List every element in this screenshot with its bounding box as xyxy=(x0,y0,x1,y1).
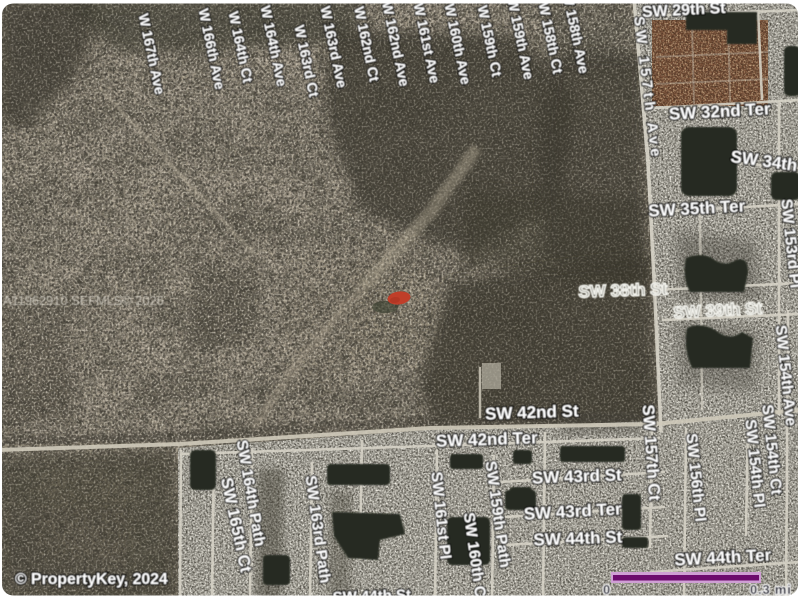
svg-text:SW 44th St: SW 44th St xyxy=(533,527,623,549)
svg-text:SW 38th St: SW 38th St xyxy=(578,279,668,301)
svg-text:SW 42nd St: SW 42nd St xyxy=(485,401,579,423)
svg-text:SW 42nd Ter: SW 42nd Ter xyxy=(436,428,539,451)
svg-text:© PropertyKey, 2024: © PropertyKey, 2024 xyxy=(15,571,168,588)
svg-text:0: 0 xyxy=(603,582,611,597)
svg-text:A11962910 SEFMLS© 2026: A11962910 SEFMLS© 2026 xyxy=(3,293,164,308)
svg-text:0.3 mi: 0.3 mi xyxy=(750,582,792,597)
svg-text:SW 43rd St: SW 43rd St xyxy=(532,465,623,487)
